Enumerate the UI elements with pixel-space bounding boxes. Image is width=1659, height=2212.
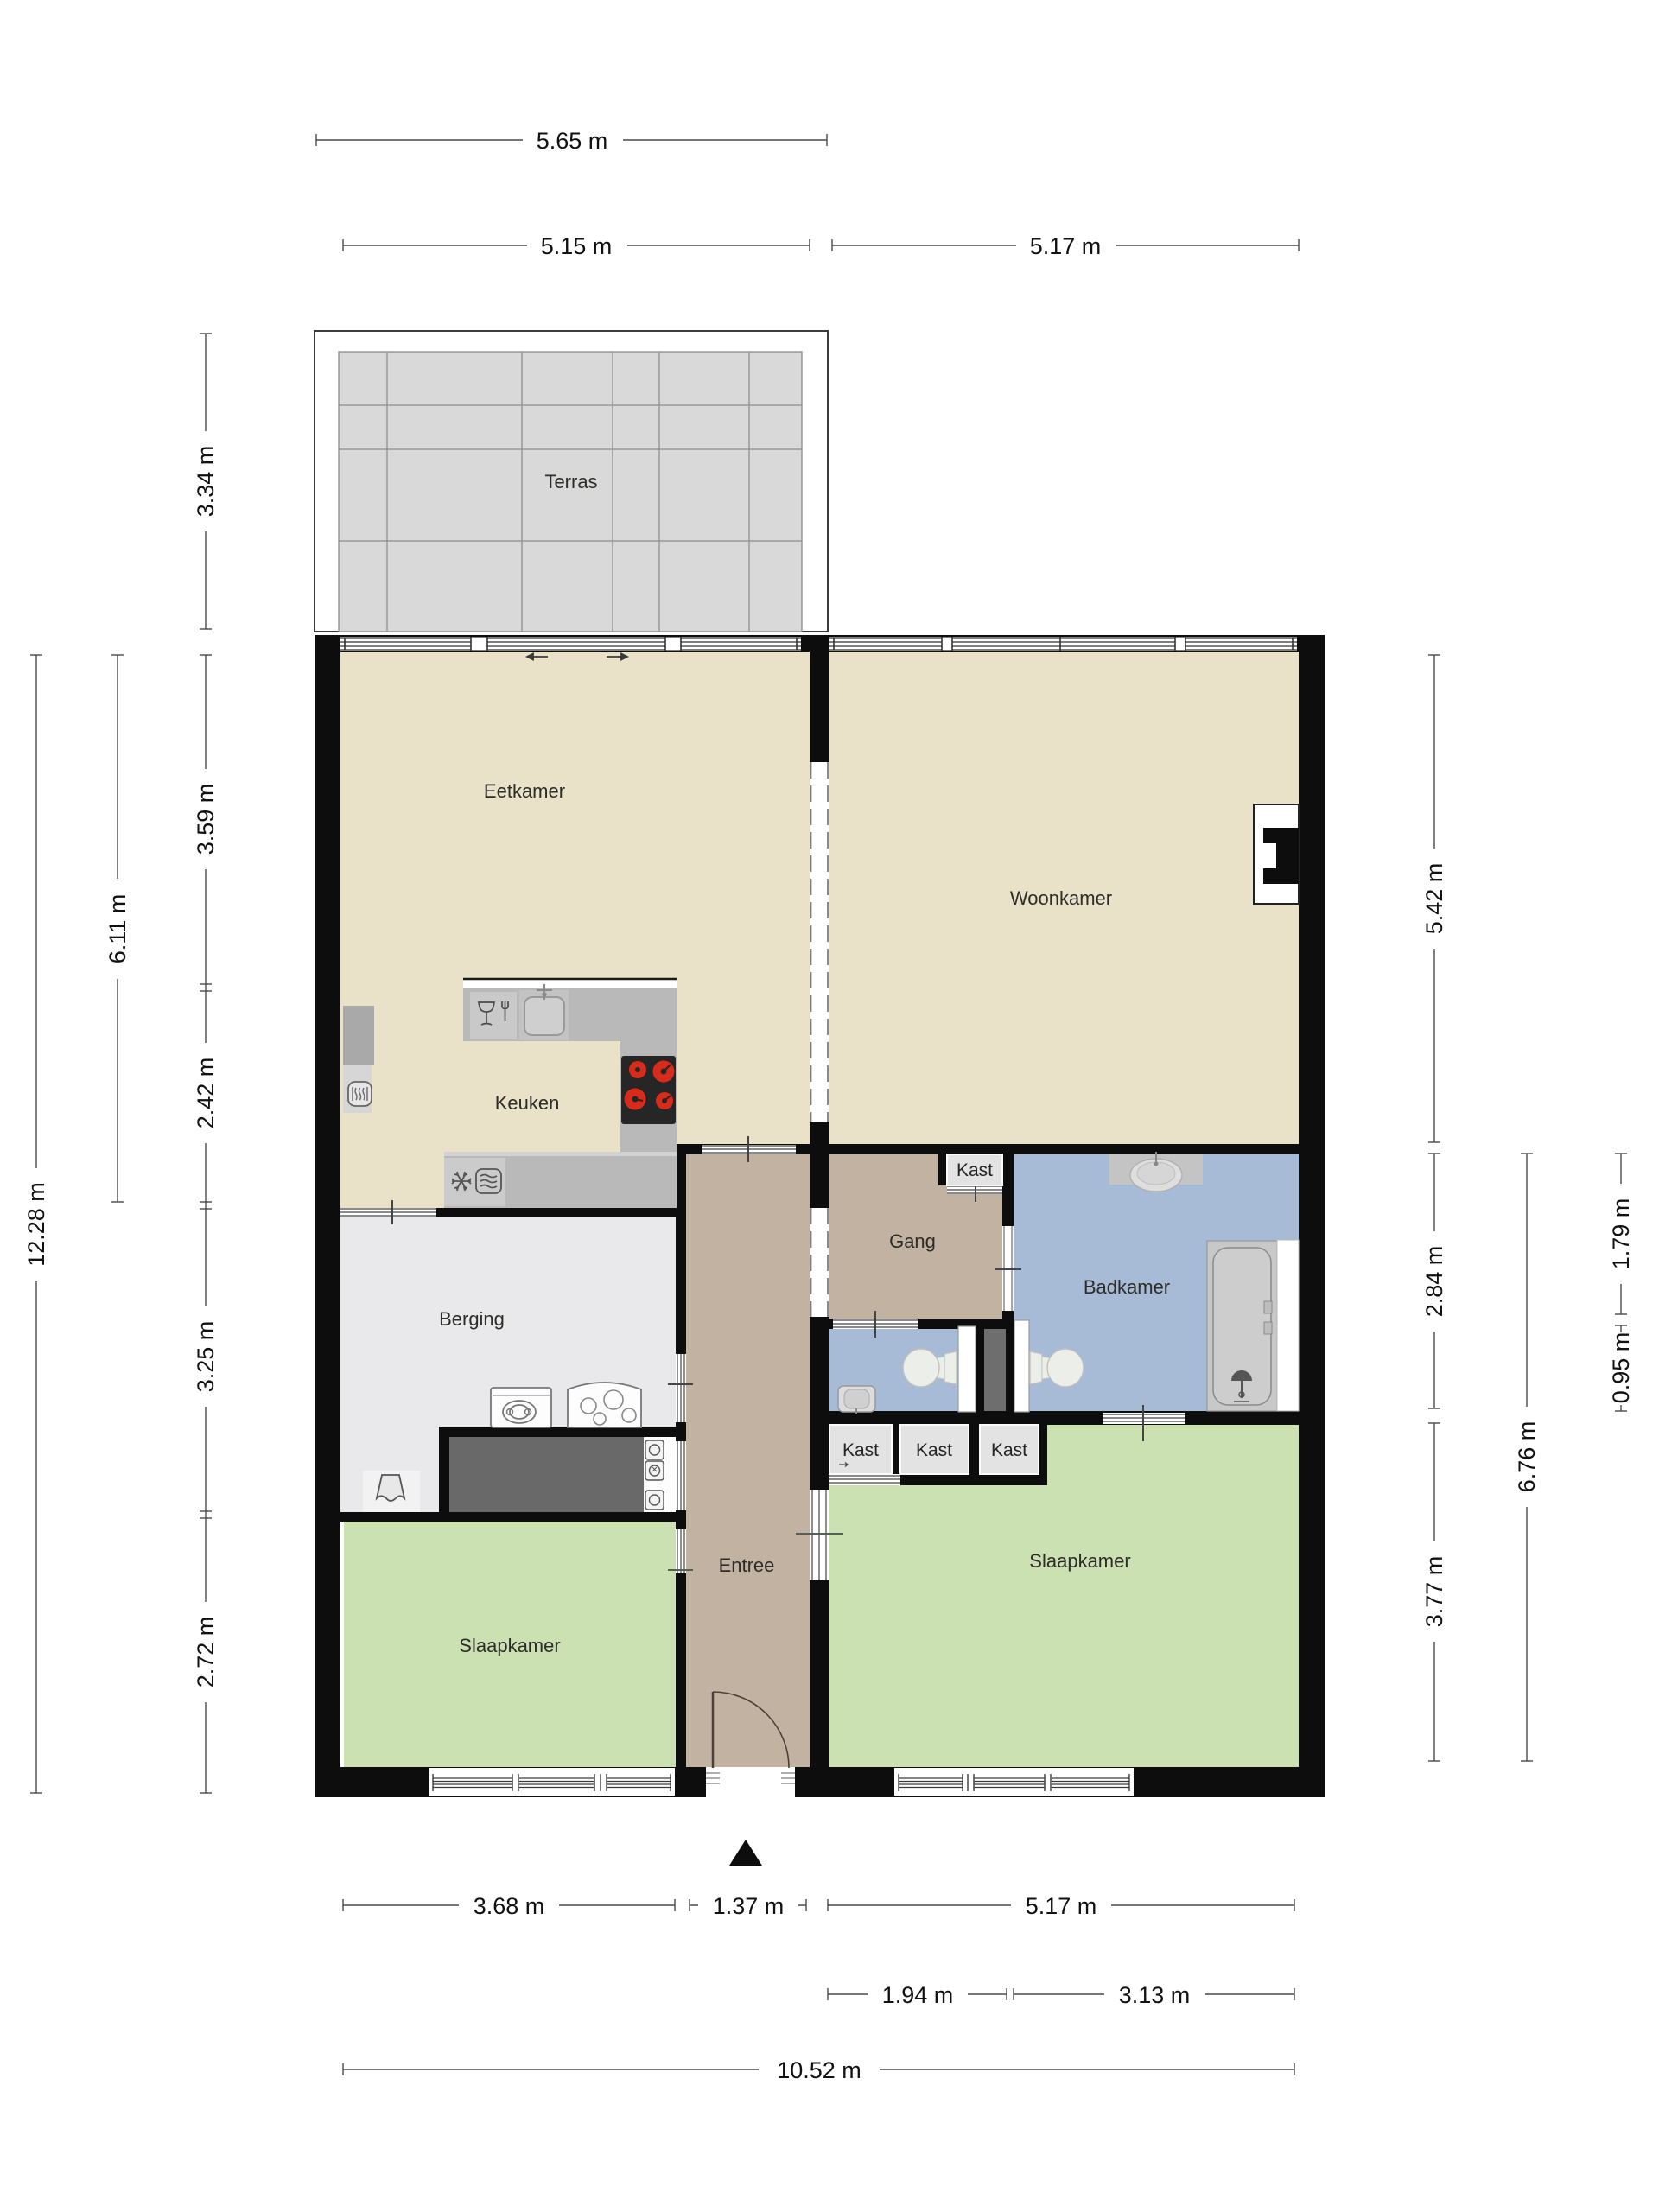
svg-text:Kast: Kast (991, 1440, 1027, 1460)
svg-text:Slaapkamer: Slaapkamer (1029, 1550, 1130, 1572)
svg-text:5.15 m: 5.15 m (541, 233, 613, 259)
svg-text:Keuken: Keuken (495, 1092, 560, 1114)
svg-text:Slaapkamer: Slaapkamer (459, 1635, 560, 1656)
svg-text:3.25 m: 3.25 m (193, 1321, 219, 1393)
svg-text:Eetkamer: Eetkamer (484, 780, 565, 802)
svg-text:Entree: Entree (719, 1554, 775, 1576)
svg-text:5.17 m: 5.17 m (1026, 1893, 1097, 1919)
svg-text:Woonkamer: Woonkamer (1010, 887, 1112, 909)
svg-text:5.17 m: 5.17 m (1030, 233, 1102, 259)
svg-text:Gang: Gang (889, 1230, 936, 1252)
svg-text:2.42 m: 2.42 m (193, 1058, 219, 1129)
svg-text:5.65 m: 5.65 m (537, 128, 608, 154)
svg-text:5.42 m: 5.42 m (1421, 863, 1447, 935)
svg-text:12.28 m: 12.28 m (23, 1182, 49, 1267)
svg-text:1.79 m: 1.79 m (1608, 1198, 1634, 1270)
svg-text:Kast: Kast (842, 1440, 879, 1460)
svg-text:Kast: Kast (916, 1440, 952, 1460)
svg-text:3.68 m: 3.68 m (474, 1893, 545, 1919)
svg-text:Terras: Terras (544, 471, 597, 493)
svg-text:3.13 m: 3.13 m (1119, 1982, 1191, 2008)
svg-text:6.76 m: 6.76 m (1514, 1421, 1540, 1493)
svg-text:3.59 m: 3.59 m (193, 784, 219, 855)
svg-text:Berging: Berging (439, 1308, 505, 1330)
svg-text:Kast: Kast (957, 1160, 993, 1180)
svg-text:2.72 m: 2.72 m (193, 1617, 219, 1688)
svg-text:10.52 m: 10.52 m (777, 2057, 861, 2083)
svg-text:0.95 m: 0.95 m (1608, 1332, 1634, 1404)
svg-text:2.84 m: 2.84 m (1421, 1246, 1447, 1318)
svg-text:3.34 m: 3.34 m (193, 446, 219, 518)
svg-text:1.37 m: 1.37 m (713, 1893, 785, 1919)
svg-text:Badkamer: Badkamer (1084, 1276, 1170, 1298)
svg-text:1.94 m: 1.94 m (882, 1982, 954, 2008)
svg-text:3.77 m: 3.77 m (1421, 1556, 1447, 1628)
svg-text:6.11 m: 6.11 m (105, 894, 130, 964)
